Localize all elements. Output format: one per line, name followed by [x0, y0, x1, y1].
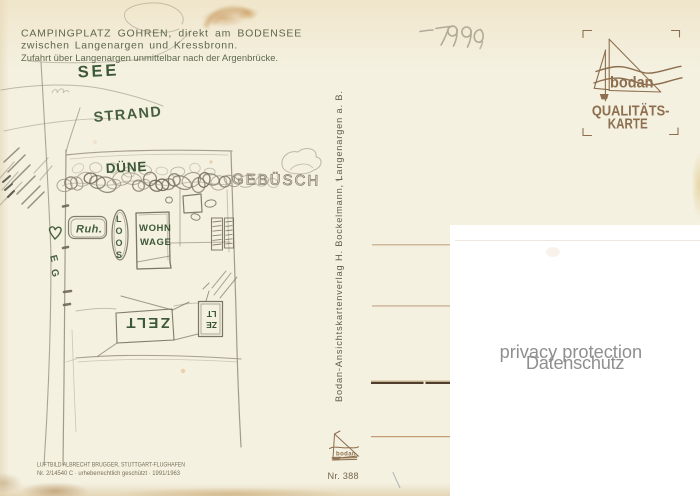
- svg-text:LUFTBILD ALBRECHT BRUGGER, STU: LUFTBILD ALBRECHT BRUGGER, STUTTGART-FLU…: [37, 462, 185, 469]
- svg-text:E: E: [47, 254, 59, 264]
- svg-text:Zufahrt über Langenargen unmit: Zufahrt über Langenargen unmittelbar nac…: [21, 52, 278, 63]
- svg-text:Nr. 388: Nr. 388: [328, 471, 359, 481]
- svg-text:DÜNE: DÜNE: [105, 159, 147, 176]
- svg-text:ZE: ZE: [206, 320, 217, 330]
- svg-text:zwischen Langenargen und Kress: zwischen Langenargen und Kressbronn.: [21, 39, 238, 51]
- svg-text:CAMPINGPLATZ GOHREN, direkt am: CAMPINGPLATZ GOHREN, direkt am BODENSEE: [21, 27, 302, 39]
- svg-text:WAGE: WAGE: [140, 237, 171, 248]
- svg-text:G: G: [48, 268, 61, 279]
- svg-text:Bodan-Ansichtskartenverlag H.: Bodan-Ansichtskartenverlag H. Bockelmann…: [334, 90, 344, 402]
- svg-text:S: S: [116, 250, 122, 260]
- svg-text:LT: LT: [206, 309, 217, 319]
- svg-text:bodan: bodan: [610, 75, 654, 92]
- svg-text:bodan: bodan: [336, 452, 356, 458]
- svg-text:ZELT: ZELT: [124, 314, 170, 331]
- svg-text:KARTE: KARTE: [608, 116, 648, 133]
- svg-text:WOHN: WOHN: [139, 223, 171, 234]
- svg-text:Nr. 2/14540 C · urheberrecht: Nr. 2/14540 C · urheberrechtlich geschüt…: [37, 470, 180, 477]
- svg-text:Datenschutz: Datenschutz: [526, 353, 625, 373]
- svg-text:SEE: SEE: [77, 61, 119, 81]
- svg-text:Ruh.: Ruh.: [76, 224, 102, 236]
- svg-text:O: O: [116, 238, 123, 248]
- svg-text:GEBÜSCH: GEBÜSCH: [232, 170, 320, 190]
- svg-text:L: L: [116, 214, 122, 224]
- svg-text:O: O: [116, 226, 123, 236]
- svg-text:STRAND: STRAND: [93, 104, 163, 126]
